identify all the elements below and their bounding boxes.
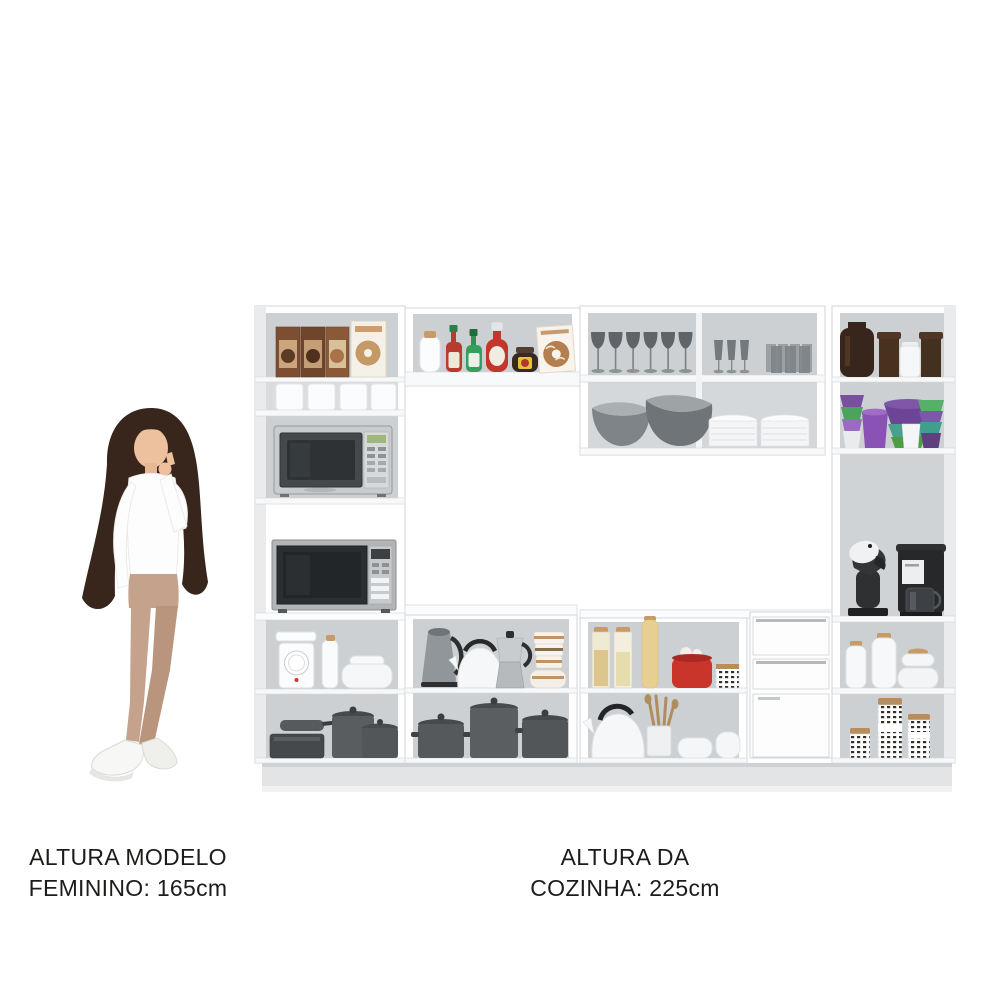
panasonic-microwave [272, 540, 396, 613]
bottom-unit-kettles [405, 605, 577, 763]
right-column [832, 306, 955, 763]
kitchen-cabinet [250, 300, 960, 800]
cereal-boxes [276, 321, 386, 377]
left-column [255, 306, 405, 763]
kitchen-height-label: ALTURA DA COZINHA: 225cm [500, 842, 750, 904]
kitchen-height-line2: COZINHA: 225cm [500, 873, 750, 904]
cookie-box [536, 325, 575, 373]
pants-hips [128, 574, 178, 608]
cabinet-door [753, 694, 829, 757]
drawer-unit [750, 612, 832, 758]
model-height-line2: FEMININO: 165cm [8, 873, 248, 904]
model-height-line1: ALTURA MODELO [8, 842, 248, 873]
product-diagram: ALTURA MODELO FEMININO: 165cm ALTURA DA … [0, 0, 1000, 1000]
woman-figure [82, 408, 208, 781]
tumbler-glasses [766, 344, 812, 373]
model-photo [30, 402, 235, 797]
drawer-top [753, 617, 829, 655]
cabinet-base [262, 763, 952, 792]
sneaker-front [92, 740, 144, 775]
condiment-shelf-unit [405, 308, 580, 386]
glassware-cabinet [580, 306, 825, 455]
flute-glasses [714, 340, 750, 373]
silver-microwave [274, 426, 392, 497]
face [134, 428, 168, 468]
kitchen-height-line1: ALTURA DA [500, 842, 750, 873]
drip-coffee-maker [896, 544, 946, 616]
patterned-box-lid [716, 664, 739, 669]
model-height-label: ALTURA MODELO FEMININO: 165cm [8, 842, 248, 904]
sneaker-back [142, 738, 177, 769]
